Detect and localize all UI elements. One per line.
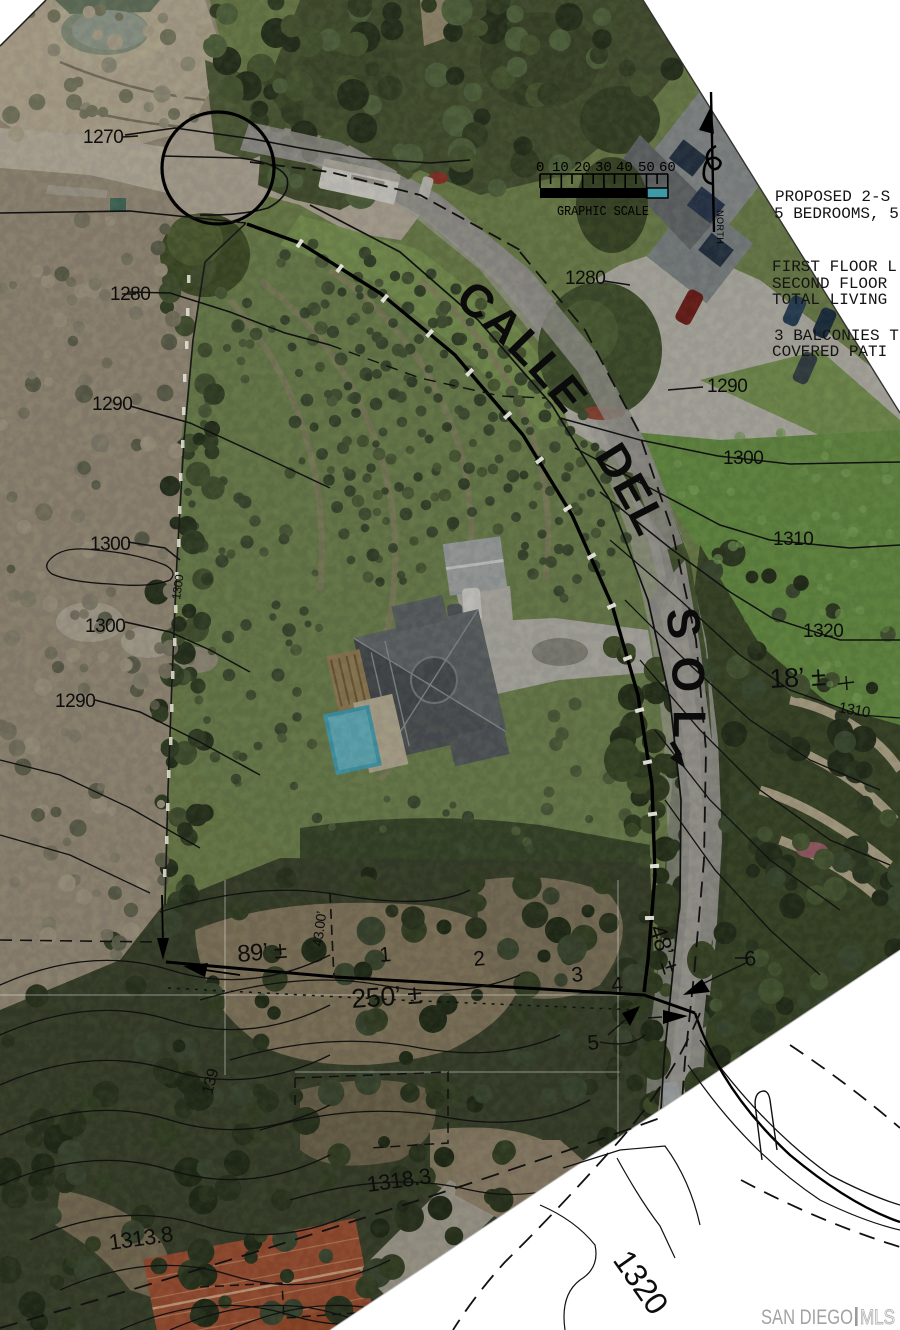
svg-text:1300: 1300 xyxy=(90,534,130,555)
svg-text:250’ ±: 250’ ± xyxy=(350,979,422,1014)
svg-text:6: 6 xyxy=(743,947,756,971)
svg-text:1270: 1270 xyxy=(83,127,123,148)
svg-text:89’ ±: 89’ ± xyxy=(236,937,288,968)
svg-text:1290: 1290 xyxy=(707,376,747,397)
svg-text:SAN DIEGO: SAN DIEGO xyxy=(761,1306,853,1329)
svg-text:1320: 1320 xyxy=(803,621,843,642)
svg-text:5 BEDROOMS, 5: 5 BEDROOMS, 5 xyxy=(774,205,899,223)
svg-text:1290: 1290 xyxy=(92,394,132,415)
svg-text:1: 1 xyxy=(378,943,391,967)
svg-text:SOL: SOL xyxy=(656,605,716,755)
svg-text:PROPOSED 2-S: PROPOSED 2-S xyxy=(775,188,890,206)
svg-text:NORTH: NORTH xyxy=(715,210,725,244)
svg-text:2: 2 xyxy=(472,947,485,971)
svg-text:TOTAL LIVING: TOTAL LIVING xyxy=(772,291,887,309)
svg-text:1310: 1310 xyxy=(773,529,813,550)
svg-text:MLS: MLS xyxy=(860,1306,895,1329)
svg-text:GRAPHIC SCALE: GRAPHIC SCALE xyxy=(557,204,649,220)
svg-text:1290: 1290 xyxy=(55,691,95,712)
svg-text:COVERED PATI: COVERED PATI xyxy=(772,343,887,361)
svg-text:18’ ±: 18’ ± xyxy=(769,661,826,694)
svg-text:FIRST FLOOR L: FIRST FLOOR L xyxy=(772,258,897,276)
svg-text:1300: 1300 xyxy=(85,616,125,637)
svg-text:5: 5 xyxy=(586,1031,599,1055)
svg-text:3: 3 xyxy=(570,963,583,987)
svg-text:1280: 1280 xyxy=(565,268,605,289)
svg-text:1300: 1300 xyxy=(723,448,763,469)
